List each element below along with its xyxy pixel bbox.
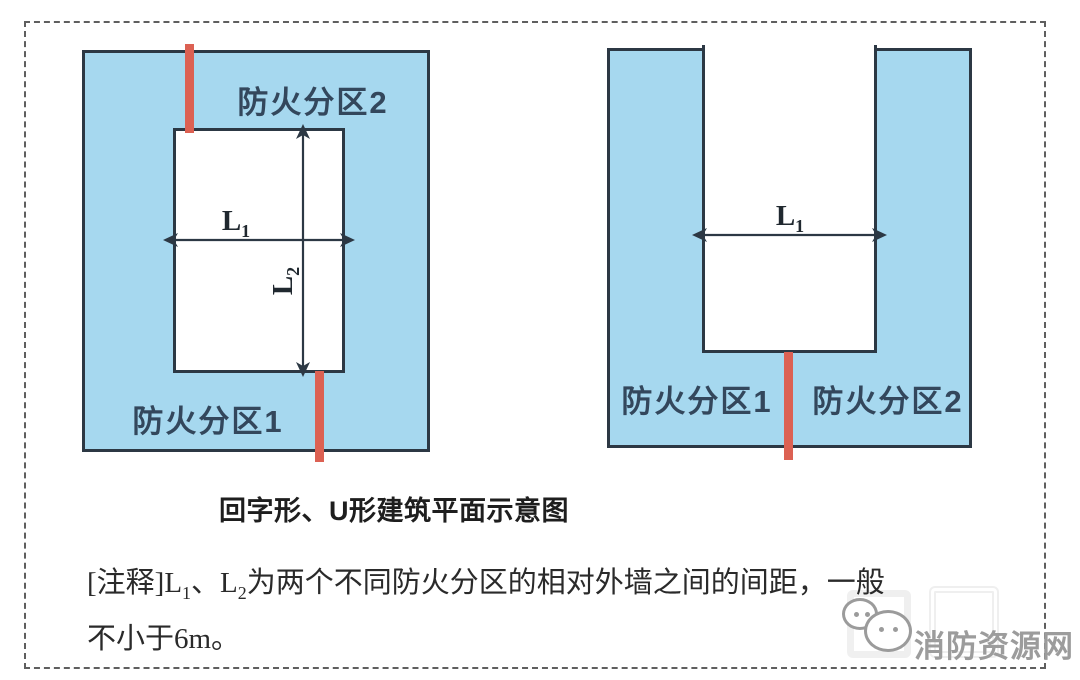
figure-caption: 回字形、U形建筑平面示意图 (88, 489, 700, 528)
fire-separation-line-right (784, 352, 793, 460)
left-zone1-label: 防火分区1 (126, 396, 290, 441)
right-zone2-label: 防火分区2 (806, 376, 970, 421)
dim-sub: 1 (241, 221, 250, 241)
dim-sub: 2 (283, 267, 303, 276)
dim-sub: 1 (795, 216, 804, 236)
site-watermark: 消防资源网 (914, 621, 1074, 666)
dim-base: L (222, 205, 241, 237)
fire-separation-line-left-bottom (315, 371, 324, 462)
chat-bubble-big (864, 610, 912, 652)
left-dim-L2-label: L2 (266, 241, 300, 321)
note-text: [注释]L (87, 567, 182, 599)
note-sub: 1 (182, 583, 191, 603)
bubble-eye (879, 627, 884, 632)
fire-separation-line-left-top (185, 44, 194, 133)
bubble-eye (854, 612, 859, 617)
wechat-chat-bubbles-icon (840, 598, 920, 660)
right-dim-L1-label: L1 (750, 199, 830, 233)
right-zone1-label: 防火分区1 (618, 376, 776, 421)
left-zone2-label: 防火分区2 (233, 77, 393, 122)
note-text: 、L (191, 567, 238, 599)
left-inner-courtyard (173, 128, 345, 373)
dim-base: L (267, 276, 299, 295)
dim-base: L (776, 200, 795, 232)
note-sub: 2 (238, 583, 247, 603)
bubble-eye (893, 627, 898, 632)
left-dim-L1-label: L1 (196, 204, 276, 238)
note-text: 为两个不同防火分区的相对外墙之间的间距，一般 (247, 567, 885, 599)
